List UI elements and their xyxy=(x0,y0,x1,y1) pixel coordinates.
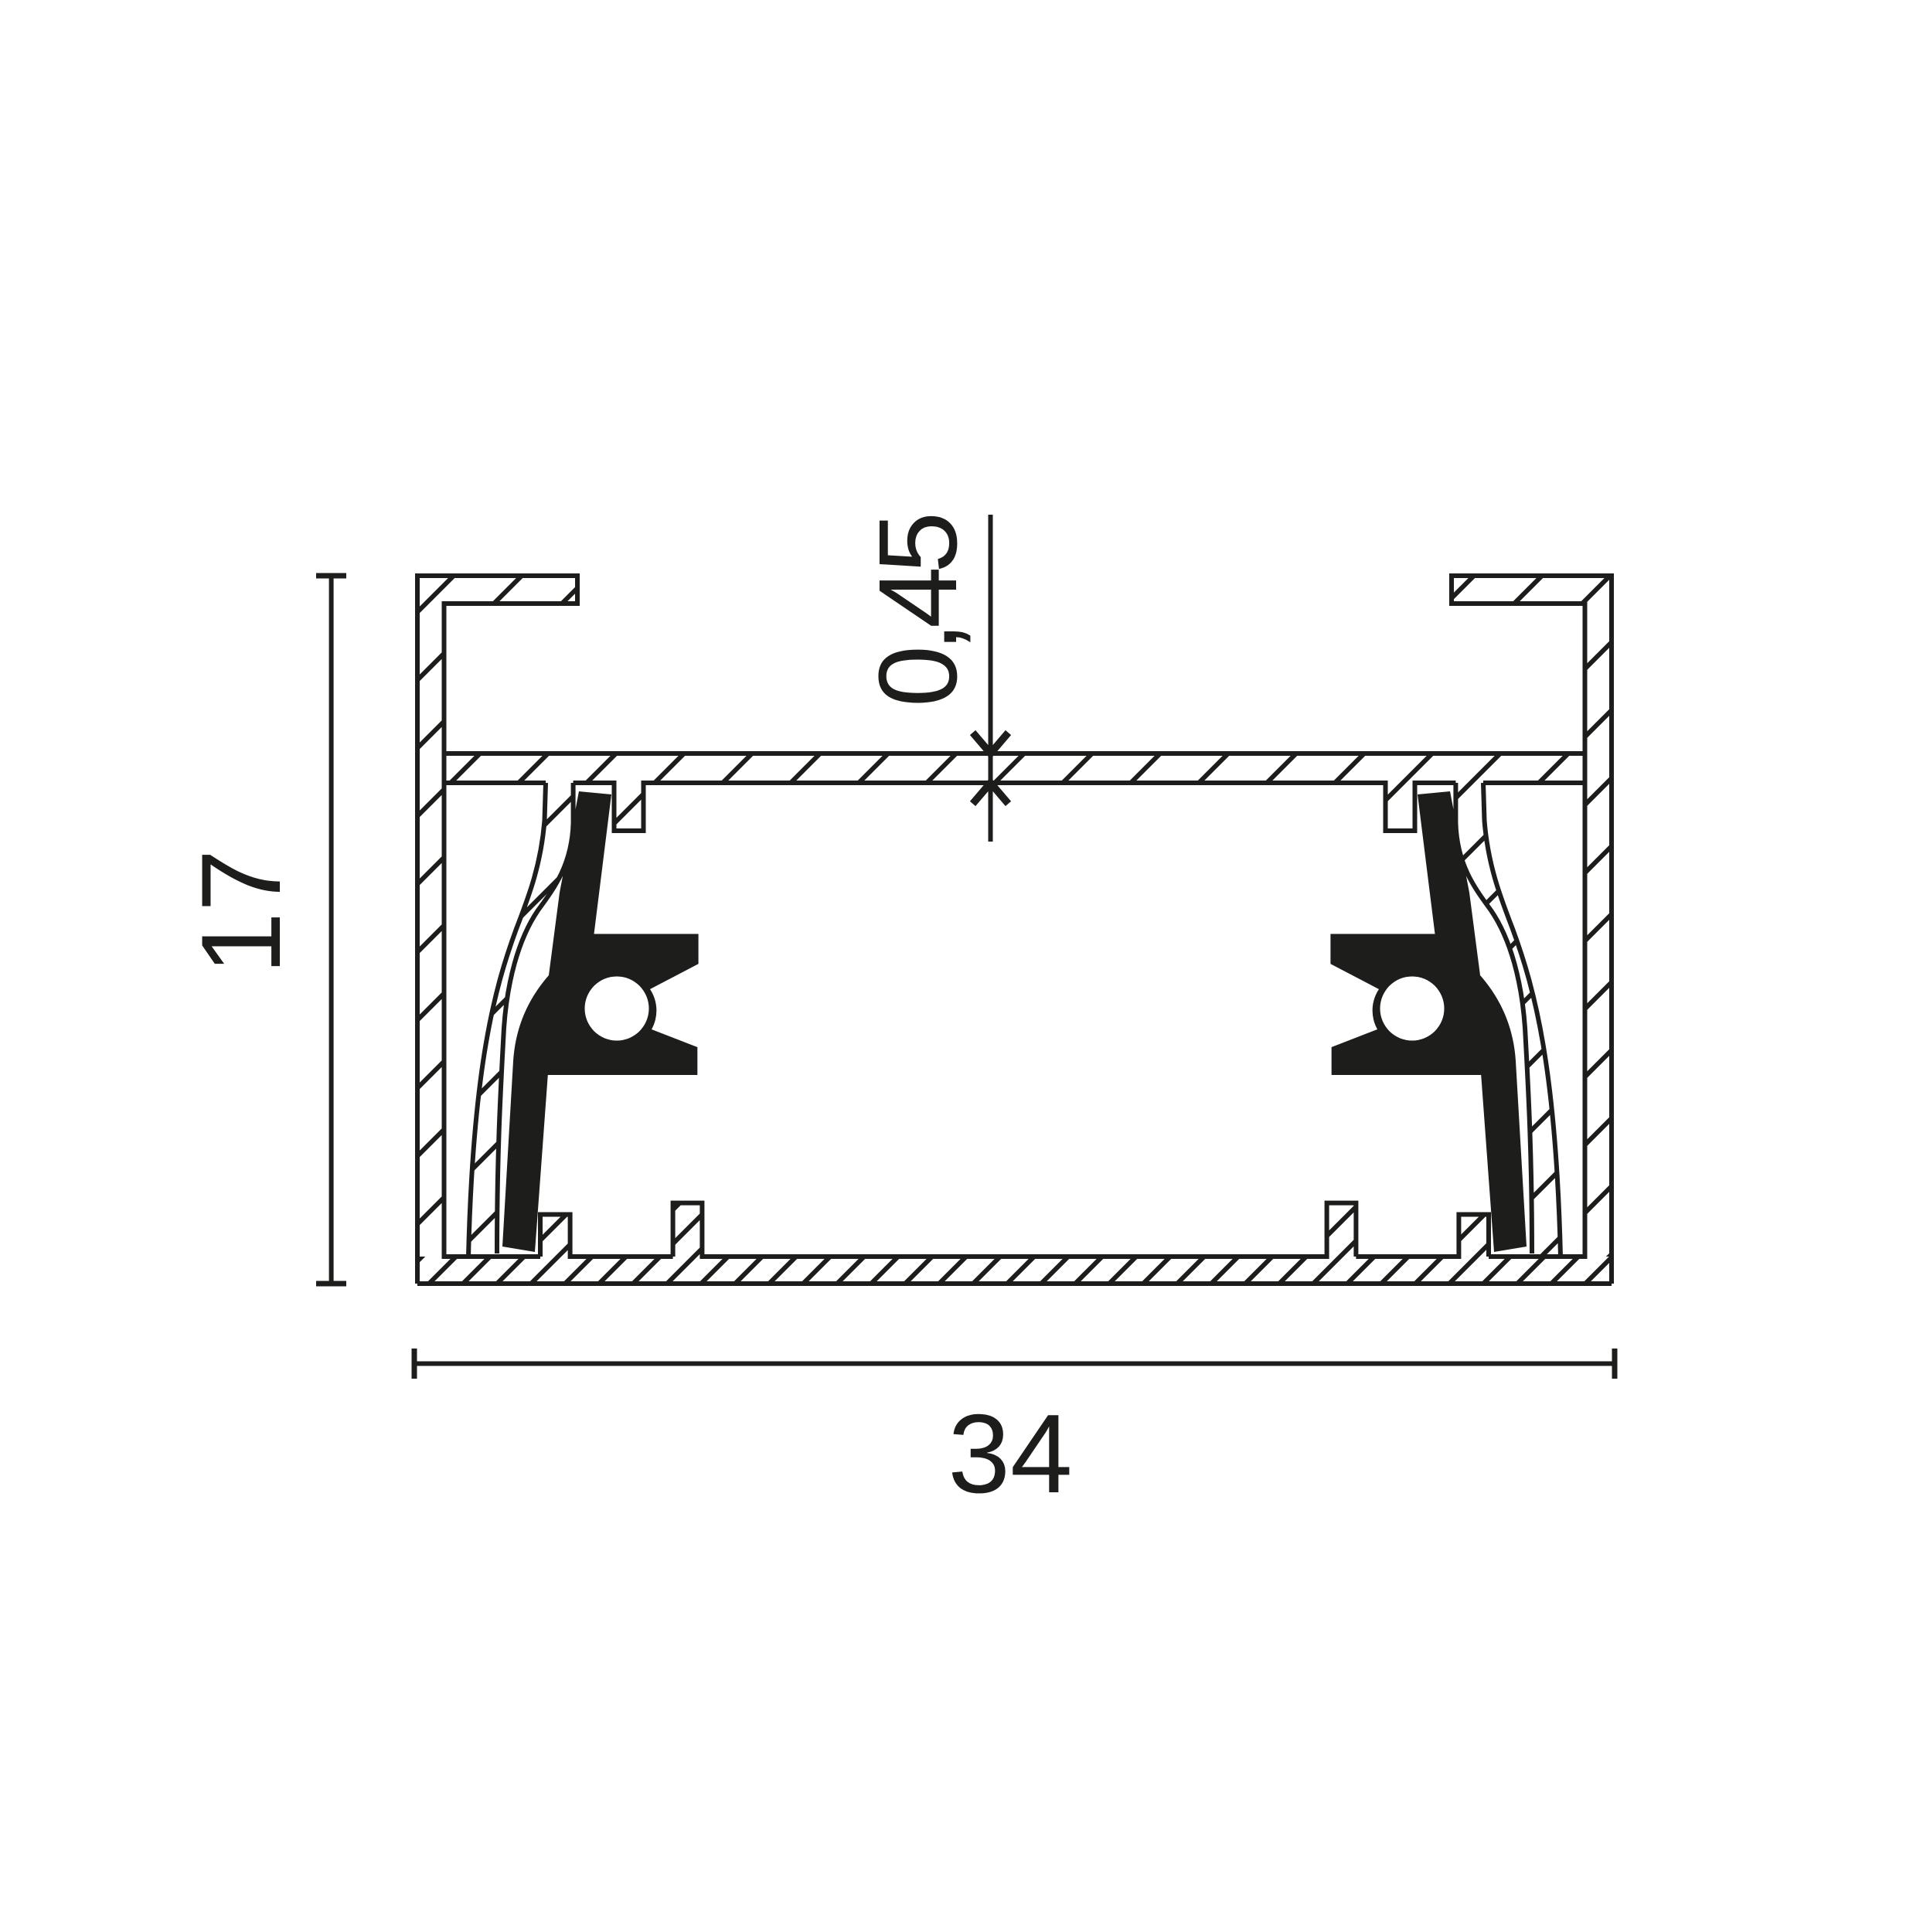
svg-text:0,45: 0,45 xyxy=(856,515,980,707)
svg-text:34: 34 xyxy=(948,1391,1072,1516)
svg-text:17: 17 xyxy=(178,849,304,975)
